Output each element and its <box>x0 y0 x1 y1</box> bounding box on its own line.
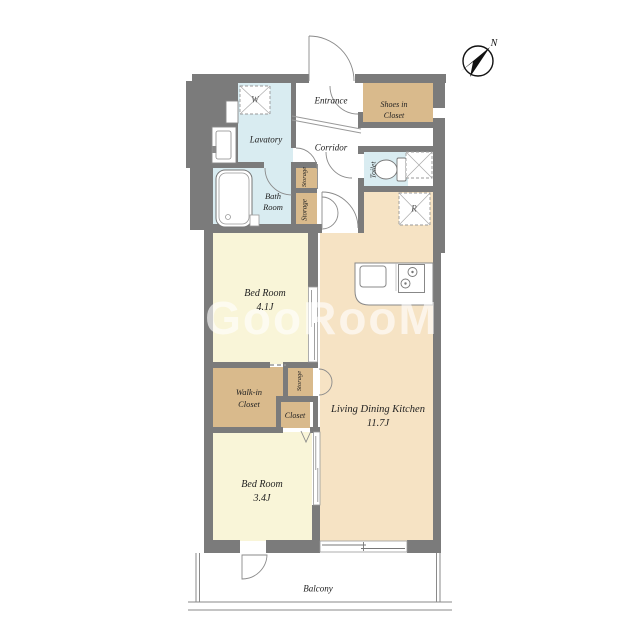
ldk-size: 11.7J <box>367 419 389 430</box>
bedroom2-size: 3.4J <box>254 494 271 504</box>
ldk-floor <box>320 192 433 541</box>
kitchen-sink <box>360 266 386 287</box>
shoes-closet-label-1: Shoes in <box>381 101 408 109</box>
walkin-closet-label-1: Walk-in <box>236 388 262 397</box>
ldk-label: Living Dining Kitchen <box>331 405 425 416</box>
fridge-symbol: R <box>411 205 417 214</box>
lavatory-label: Lavatory <box>250 136 283 145</box>
walkin-closet-label-2: Closet <box>238 400 260 409</box>
entrance-label: Entrance <box>315 97 348 106</box>
shoes-closet-vent-gap <box>433 108 445 118</box>
storage-lower-label: Storage <box>302 199 309 221</box>
closet-label: Closet <box>285 412 305 420</box>
shoes-closet-label-2: Closet <box>384 112 404 120</box>
storage-wic-label: Storage <box>297 371 304 391</box>
ldk-balcony-window <box>320 541 407 552</box>
bathroom-label-2: Room <box>263 203 283 212</box>
kitchen-counter <box>355 263 433 305</box>
bedroom1-label: Bed Room <box>244 289 285 299</box>
toilet-door <box>326 152 352 178</box>
ldk-door <box>322 192 358 228</box>
storage-wic-opening <box>313 368 318 396</box>
bedroom1-sliding-door <box>309 287 318 362</box>
bedroom1-size: 4.1J <box>257 303 274 313</box>
floor-plan: GooRooM Entrance Shoes in Closet Lavator… <box>0 0 640 640</box>
corridor-label: Corridor <box>315 144 348 153</box>
compass <box>461 46 493 77</box>
bathroom-label-1: Bath <box>265 192 281 201</box>
toilet-label: Toilet <box>369 162 377 179</box>
compass-north-label: N <box>491 39 498 49</box>
walkin-closet-floor <box>212 367 283 428</box>
entrance-step-lines <box>292 116 361 133</box>
kitchen-stove <box>399 265 425 293</box>
toilet-fixture <box>375 158 406 181</box>
bedroom2-label: Bed Room <box>241 480 282 490</box>
entrance-door <box>309 36 354 81</box>
storage-upper-label: Storage <box>302 167 309 187</box>
storage-double-door <box>322 197 338 229</box>
washer-symbol: W <box>251 96 259 105</box>
bedroom2-sliding-door <box>314 432 321 505</box>
balcony-rails <box>188 553 452 610</box>
bedroom2-balcony-door <box>242 555 267 579</box>
balcony-label: Balcony <box>303 585 333 594</box>
